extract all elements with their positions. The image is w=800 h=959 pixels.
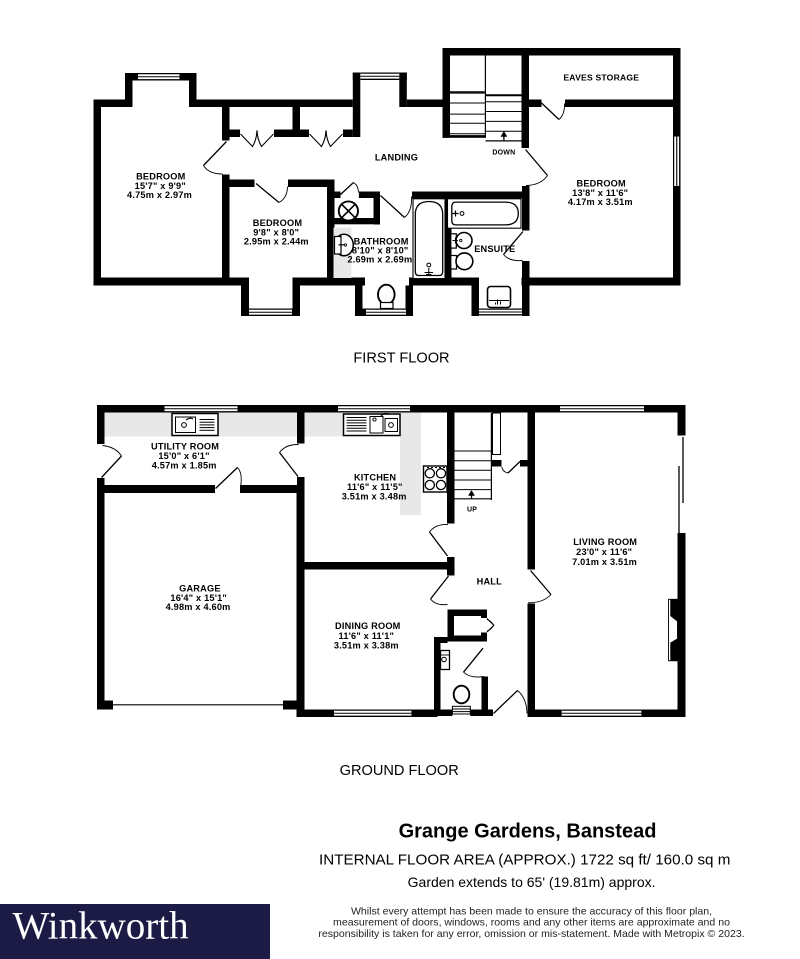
svg-text:DOWN: DOWN [492, 150, 515, 157]
svg-text:3.51m x 3.48m: 3.51m x 3.48m [342, 492, 407, 502]
svg-text:INTERNAL FLOOR AREA (APPROX.): INTERNAL FLOOR AREA (APPROX.) 1722 sq ft… [319, 852, 730, 869]
svg-text:BEDROOM: BEDROOM [136, 171, 186, 181]
svg-text:Grange Gardens, Banstead: Grange Gardens, Banstead [399, 820, 657, 842]
svg-text:UTILITY ROOM: UTILITY ROOM [151, 442, 219, 452]
svg-text:4.98m x 4.60m: 4.98m x 4.60m [166, 602, 231, 612]
svg-text:2.95m x 2.44m: 2.95m x 2.44m [244, 237, 309, 247]
svg-text:LANDING: LANDING [375, 153, 418, 163]
svg-text:2.69m x 2.69m: 2.69m x 2.69m [347, 254, 412, 264]
svg-text:ENSUITE: ENSUITE [474, 244, 515, 254]
svg-text:4.17m x 3.51m: 4.17m x 3.51m [568, 197, 633, 207]
svg-text:Garden extends to 65' (19.81m): Garden extends to 65' (19.81m) approx. [408, 874, 656, 890]
svg-text:UP: UP [467, 507, 477, 514]
svg-text:3.51m x 3.38m: 3.51m x 3.38m [334, 641, 399, 651]
svg-text:responsibility is taken for an: responsibility is taken for any error, o… [318, 928, 744, 940]
svg-text:4.57m x 1.85m: 4.57m x 1.85m [152, 461, 217, 471]
svg-text:23'0" x 11'6": 23'0" x 11'6" [576, 547, 632, 557]
svg-text:Whilst every attempt has been: Whilst every attempt has been made to en… [351, 906, 712, 918]
svg-text:4.75m x 2.97m: 4.75m x 2.97m [127, 190, 192, 200]
svg-text:BEDROOM: BEDROOM [577, 178, 627, 188]
svg-text:LIVING ROOM: LIVING ROOM [573, 537, 637, 547]
svg-text:DINING ROOM: DINING ROOM [335, 621, 401, 631]
svg-text:7.01m x 3.51m: 7.01m x 3.51m [572, 557, 637, 567]
svg-text:measurement of doors, windows,: measurement of doors, windows, rooms and… [333, 917, 730, 929]
svg-text:11'6" x 11'5": 11'6" x 11'5" [347, 482, 403, 492]
svg-text:15'0" x 6'1": 15'0" x 6'1" [158, 451, 209, 461]
svg-text:KITCHEN: KITCHEN [354, 473, 396, 483]
svg-text:GROUND FLOOR: GROUND FLOOR [340, 763, 459, 779]
svg-text:11'6" x 11'1": 11'6" x 11'1" [339, 631, 395, 641]
svg-text:Winkworth: Winkworth [13, 905, 189, 948]
svg-text:BEDROOM: BEDROOM [253, 218, 303, 228]
svg-text:HALL: HALL [477, 577, 502, 587]
svg-text:GARAGE: GARAGE [179, 583, 221, 593]
svg-text:FIRST FLOOR: FIRST FLOOR [353, 351, 449, 367]
svg-text:EAVES STORAGE: EAVES STORAGE [563, 73, 639, 83]
